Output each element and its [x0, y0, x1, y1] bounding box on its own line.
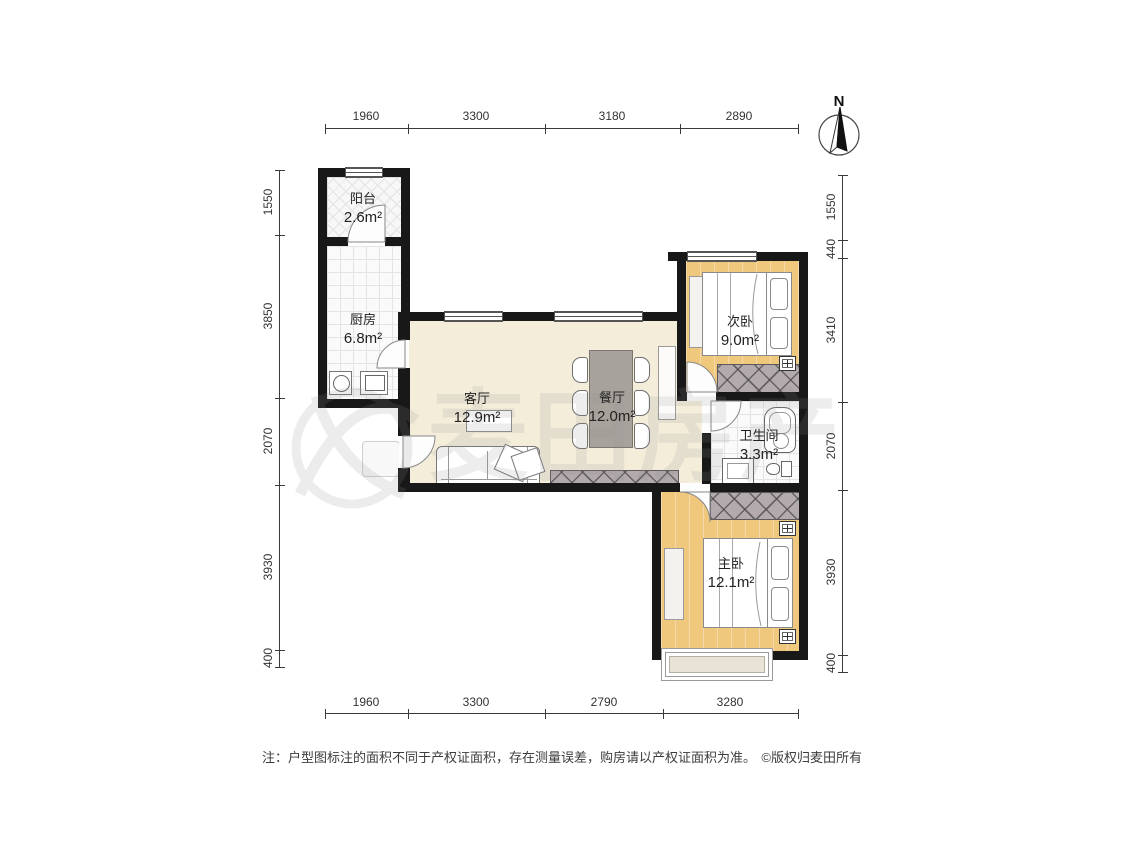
dimension-line-top — [325, 128, 798, 129]
dim-label: 2890 — [726, 109, 753, 123]
dimension-line-right — [842, 175, 843, 672]
dim-label: 3300 — [463, 695, 490, 709]
room-label-balcony: 阳台2.6m² — [344, 189, 382, 227]
room-label-master: 主卧12.1m² — [708, 554, 755, 592]
dim-label: 1550 — [261, 189, 275, 216]
dimension-line-left — [279, 170, 280, 667]
room-label-bathroom: 卫生间3.3m² — [739, 426, 778, 464]
dim-label: 2790 — [591, 695, 618, 709]
dim-label: 3930 — [824, 559, 838, 586]
copyright-text: ©版权归麦田所有 — [761, 747, 862, 766]
dim-label: 1550 — [824, 194, 838, 221]
dim-label: 3410 — [824, 317, 838, 344]
footer-note-bar: 注：户型图标注的面积不同于产权证面积，存在测量误差，购房请以产权证面积为准。 ©… — [262, 747, 862, 766]
floorplan-canvas: 麦田房产 阳台2.6m² 厨房6.8m² 客厅12.9m² 餐厅12.0m² 次… — [0, 0, 1125, 844]
dim-label: 400 — [824, 653, 838, 673]
room-label-living: 客厅12.9m² — [454, 389, 501, 427]
dim-label: 3180 — [599, 109, 626, 123]
dim-label: 2070 — [261, 428, 275, 455]
room-label-kitchen: 厨房6.8m² — [344, 310, 382, 348]
dim-label: 3850 — [261, 303, 275, 330]
dim-label: 3930 — [261, 554, 275, 581]
dim-label: 440 — [824, 239, 838, 259]
dim-label: 1960 — [353, 695, 380, 709]
room-label-dining: 餐厅12.0m² — [589, 388, 636, 426]
dim-label: 2070 — [824, 433, 838, 460]
dimension-line-bottom — [325, 713, 798, 714]
dim-label: 3300 — [463, 109, 490, 123]
dim-label: 400 — [261, 648, 275, 668]
dim-label: 3280 — [717, 695, 744, 709]
room-label-bedroom2: 次卧9.0m² — [721, 312, 759, 350]
compass-icon — [809, 105, 869, 175]
disclaimer-note: 注：户型图标注的面积不同于产权证面积，存在测量误差，购房请以产权证面积为准。 — [262, 747, 756, 766]
dim-label: 1960 — [353, 109, 380, 123]
